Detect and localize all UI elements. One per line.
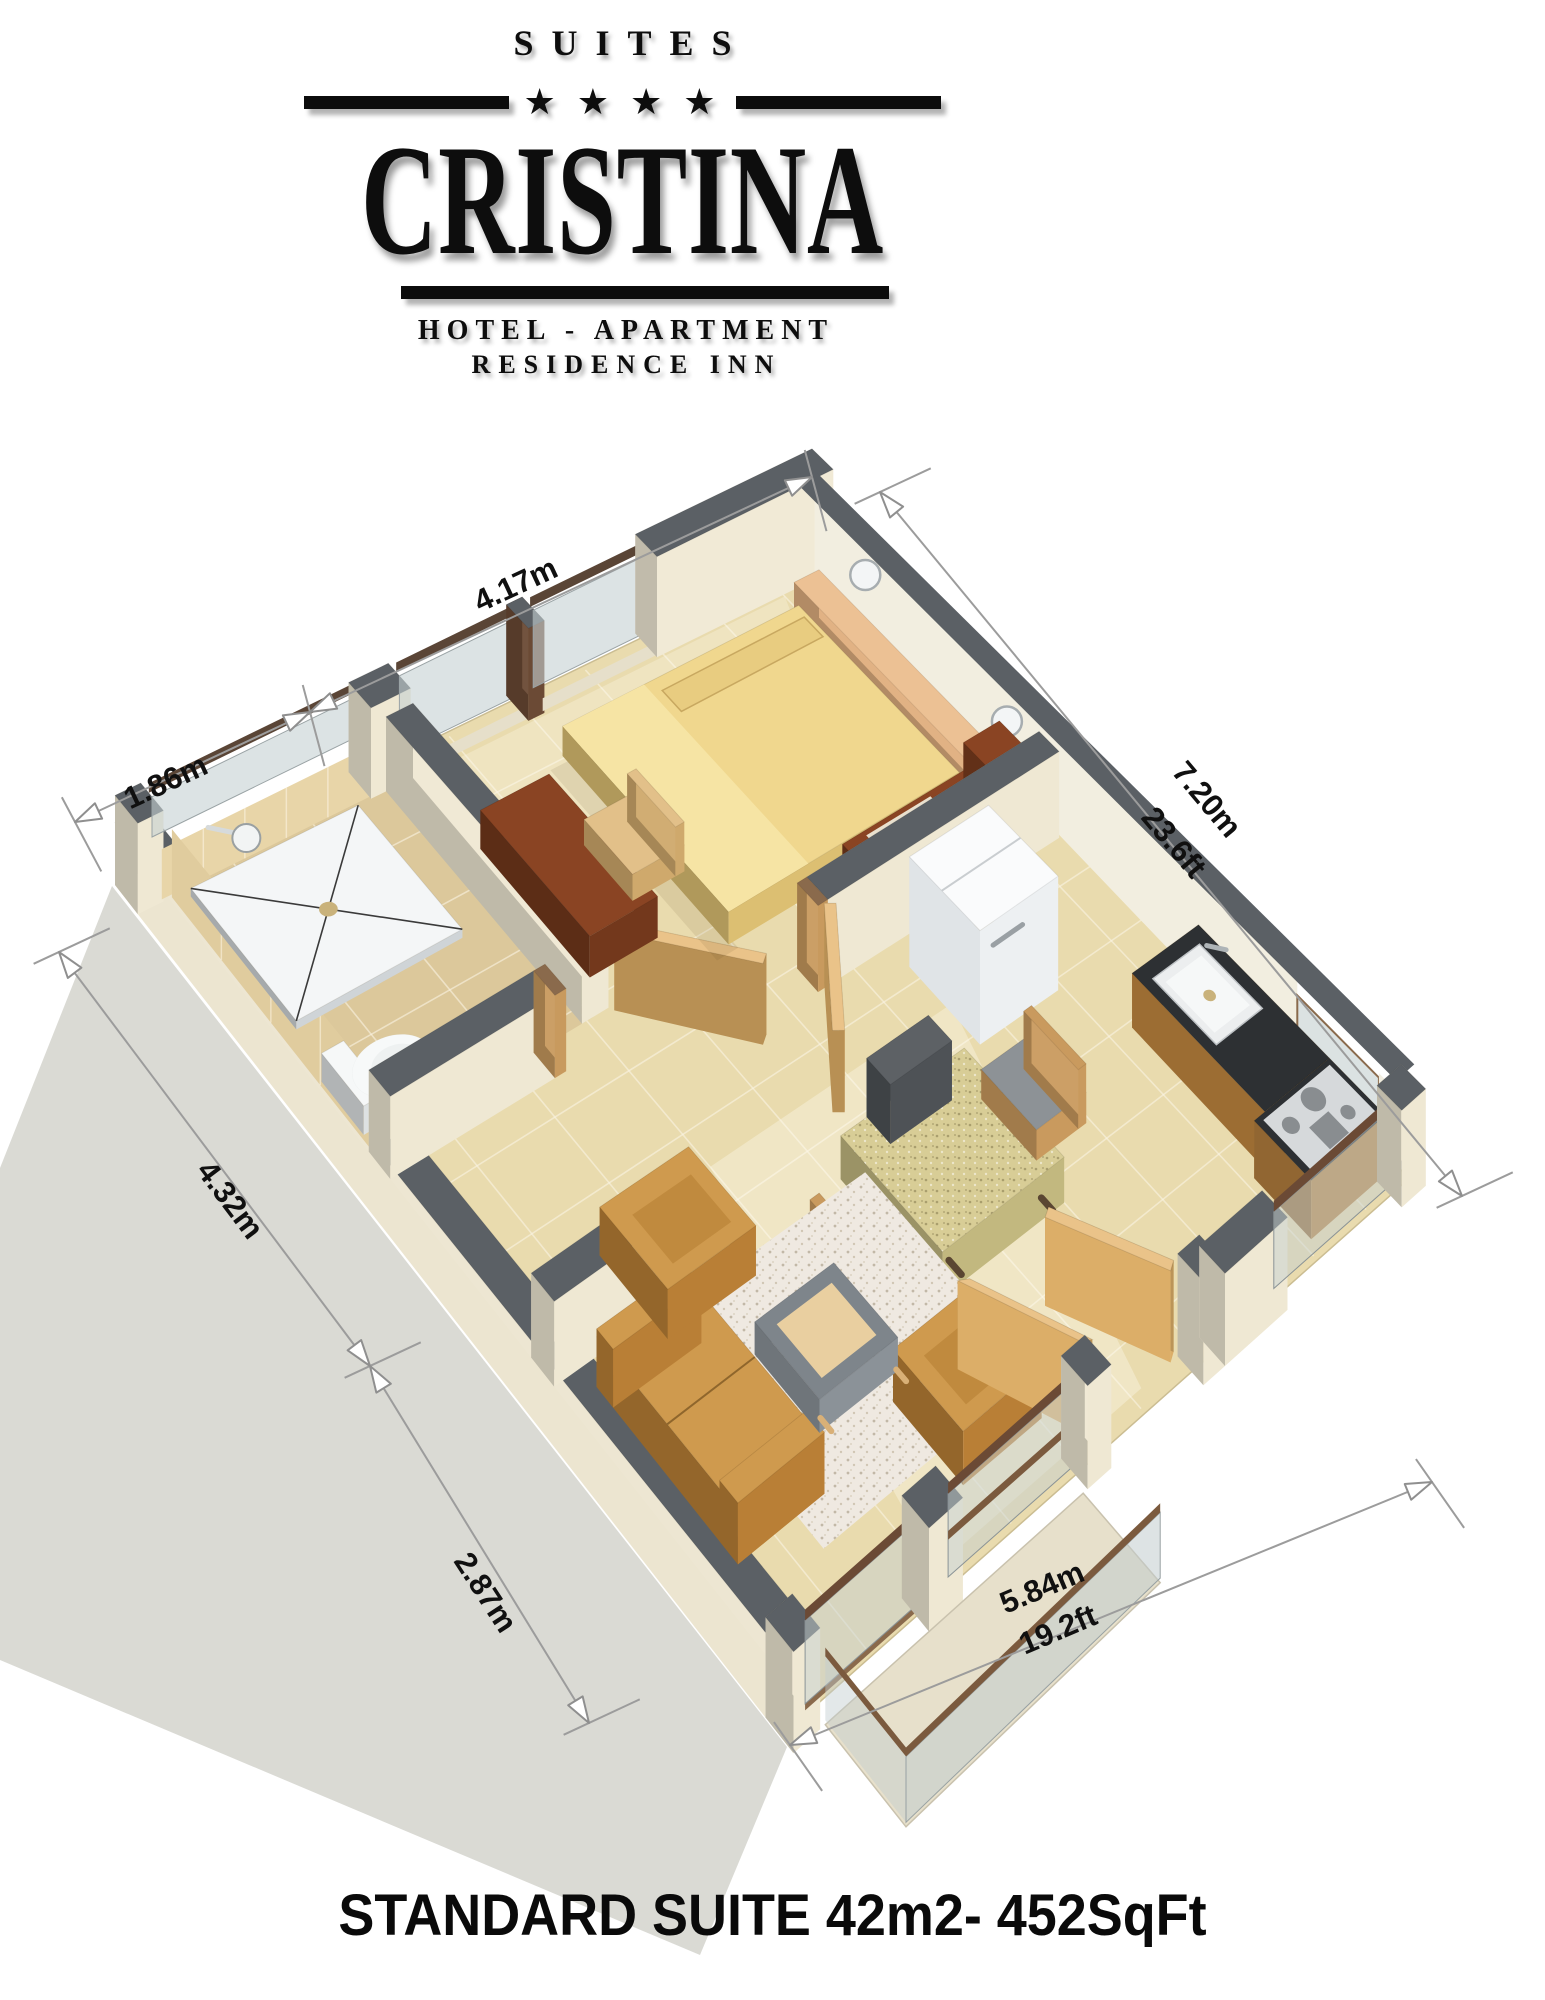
rule-right xyxy=(736,96,941,109)
brand-name: CRISTINA xyxy=(205,122,1039,280)
shower-head xyxy=(232,824,260,852)
brand-tagline-2: RESIDENCE INN xyxy=(0,350,1245,380)
brand-tagline-1: HOTEL - APARTMENT xyxy=(0,315,1245,347)
brand-underline xyxy=(401,286,889,299)
brand-logo: SUITES ★ ★ ★ ★ CRISTINA HOTEL - APARTMEN… xyxy=(0,22,1245,380)
wall-lamp xyxy=(850,560,880,590)
rule-left xyxy=(304,96,509,109)
flyer-page: 1.86m4.17m7.20m23.6ft4.32m2.87m5.84m19.2… xyxy=(0,0,1545,2000)
brand-suites: SUITES xyxy=(0,22,1245,64)
caption: STANDARD SUITE 42m2- 452SqFt xyxy=(54,1882,1491,1949)
